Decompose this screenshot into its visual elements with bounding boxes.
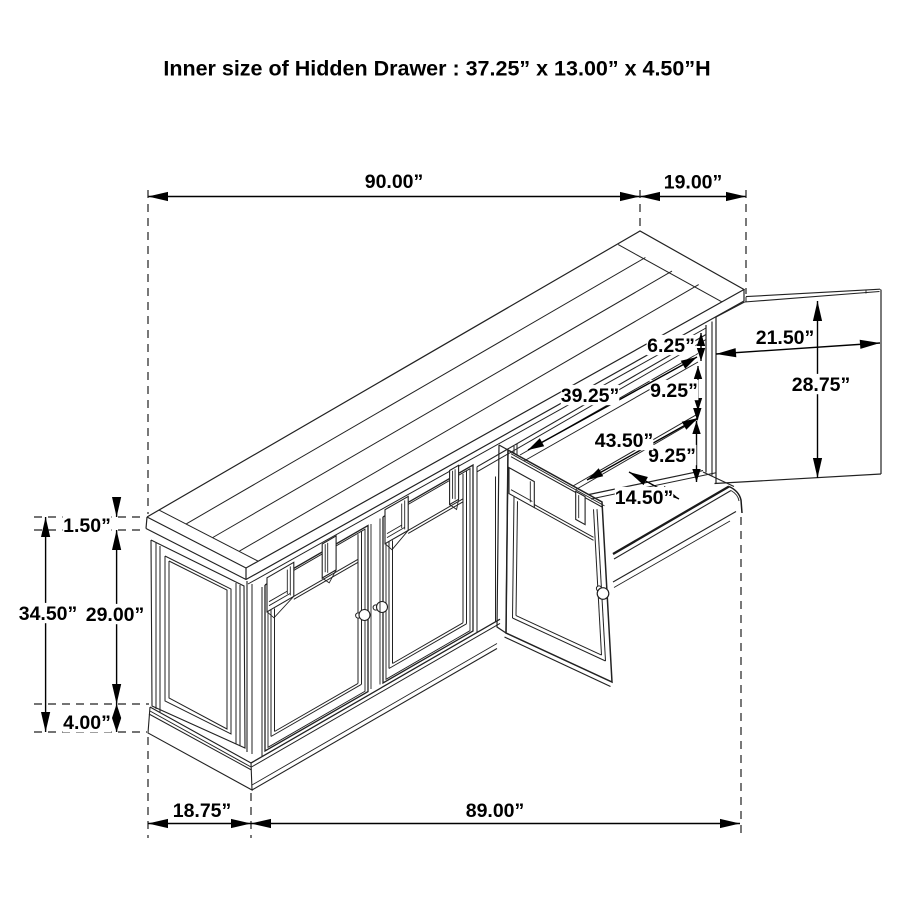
svg-text:6.25”: 6.25” [647, 335, 695, 357]
svg-text:14.50”: 14.50” [615, 487, 674, 509]
svg-text:9.25”: 9.25” [648, 445, 696, 467]
svg-text:18.75”: 18.75” [173, 800, 232, 822]
svg-text:34.50”: 34.50” [19, 603, 78, 625]
svg-text:90.00”: 90.00” [365, 171, 424, 193]
svg-text:28.75”: 28.75” [792, 374, 851, 396]
svg-text:39.25”: 39.25” [561, 385, 620, 407]
svg-text:1.50”: 1.50” [63, 515, 111, 537]
svg-text:19.00”: 19.00” [664, 172, 723, 194]
svg-text:29.00”: 29.00” [86, 604, 145, 626]
svg-text:4.00”: 4.00” [63, 712, 111, 734]
svg-text:Inner size of Hidden Drawer :: Inner size of Hidden Drawer : 37.25” x 1… [163, 57, 710, 81]
svg-text:9.25”: 9.25” [650, 380, 698, 402]
svg-text:43.50”: 43.50” [595, 430, 654, 452]
svg-text:89.00”: 89.00” [466, 800, 525, 822]
svg-text:21.50”: 21.50” [756, 327, 815, 349]
